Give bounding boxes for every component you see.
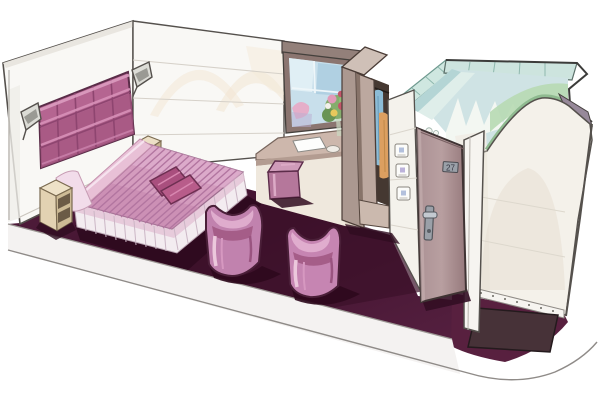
svg-text:27: 27 <box>446 164 455 173</box>
